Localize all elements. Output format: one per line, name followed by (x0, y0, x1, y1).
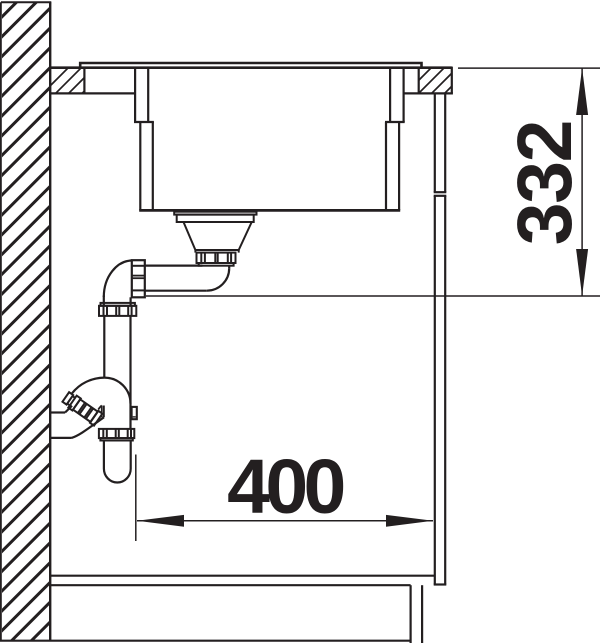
svg-text:400: 400 (227, 444, 343, 530)
svg-text:332: 332 (502, 121, 588, 245)
